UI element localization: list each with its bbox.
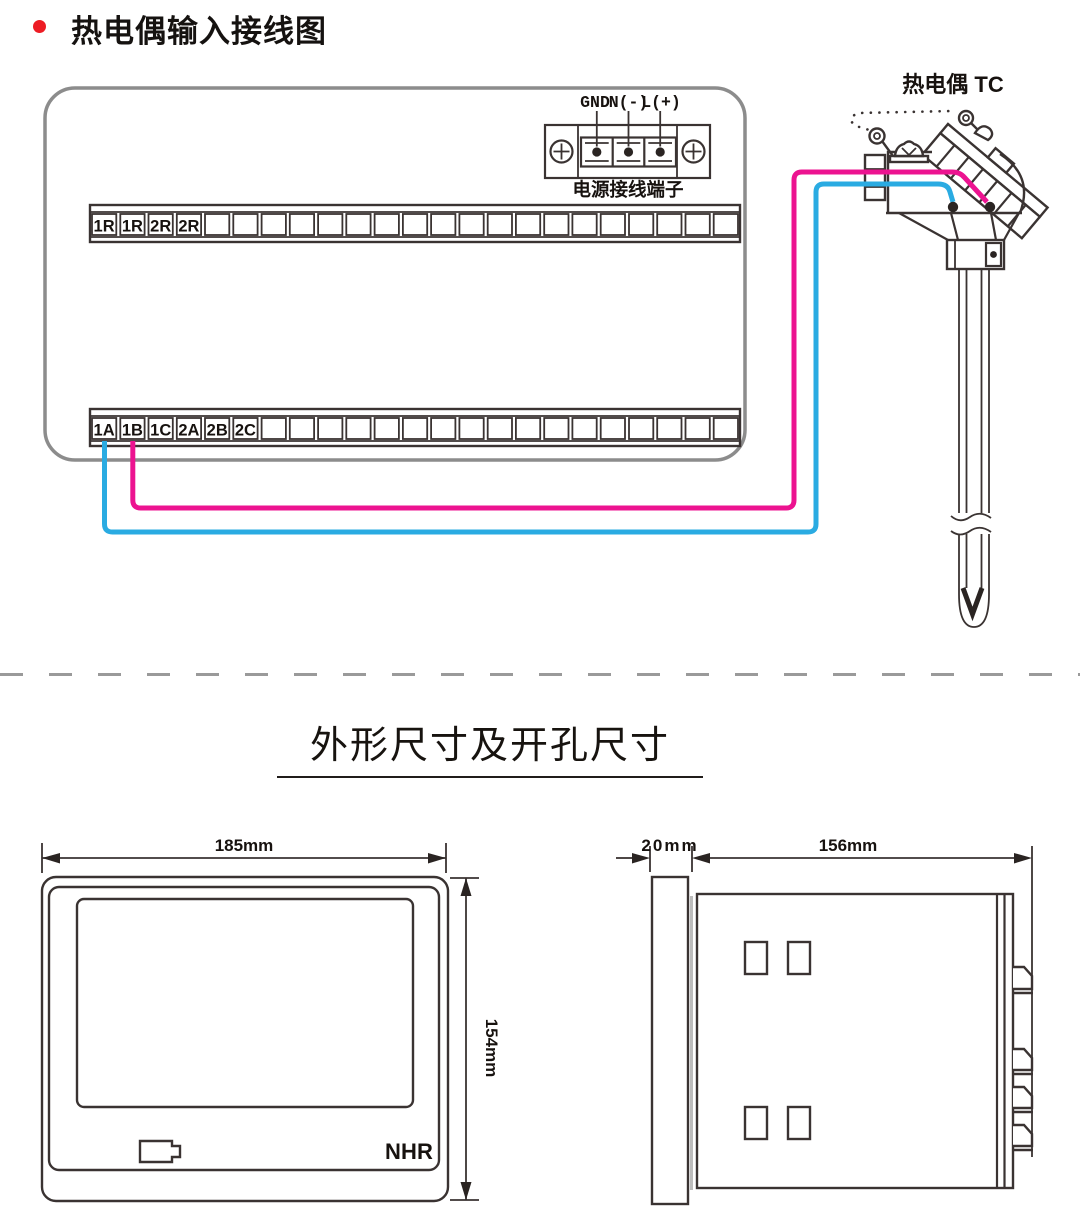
power-terminal-caption: 电源接线端子 (572, 179, 683, 200)
junction-v-mark (963, 588, 982, 614)
retaining-chain-dotted (851, 111, 952, 131)
terminal-cell-label: 1R (94, 218, 115, 236)
probe-clamp (947, 240, 1004, 269)
vent-slot (745, 1107, 767, 1139)
terminal-cell-label: 2C (235, 422, 256, 440)
wire-terminal-dot (985, 202, 995, 212)
terminal-cell-label: 1B (122, 422, 143, 440)
manual-page: 热电偶输入接线图 GND N(-) L(+) 电源接线端子 1R1R2R2R (0, 0, 1080, 1229)
side-length-label: 156mm (819, 836, 878, 855)
mounting-claws (1013, 967, 1033, 1150)
logo-letter-h: H (401, 1139, 417, 1164)
eyelet-screw-right (959, 111, 992, 140)
arrow-down-icon (461, 1182, 472, 1200)
terminal-cell-label: 2R (178, 218, 199, 236)
dashed-divider (0, 673, 1080, 676)
thermocouple-drawing: 热电偶 TC (851, 72, 1055, 627)
wire-terminal-dot (948, 202, 958, 212)
terminal-cell-label: 1A (94, 422, 115, 440)
vent-slot (788, 1107, 810, 1139)
arrow-left-icon (42, 853, 60, 864)
wing-screw (890, 142, 928, 163)
nhr-logo: N H R (385, 1139, 433, 1164)
side-bezel (652, 877, 688, 1204)
terminal-cell-label: 1R (122, 218, 143, 236)
arrow-up-icon (461, 878, 472, 896)
terminal-dot (656, 147, 665, 156)
arrow-right-icon (428, 853, 446, 864)
terminal-dot (592, 147, 601, 156)
front-screen (77, 899, 413, 1107)
terminal-cell-label: 1C (150, 422, 171, 440)
side-body (697, 894, 1013, 1188)
front-view: 185mm N H R 154mm (42, 836, 501, 1201)
dimensions-section-title: 外形尺寸及开孔尺寸 (277, 714, 703, 778)
side-view: 20mm 156mm (616, 836, 1033, 1204)
logo-letter-n: N (385, 1139, 401, 1164)
front-height-label: 154mm (482, 1019, 501, 1078)
terminal-cell-label: 2R (150, 218, 171, 236)
hex-nut (865, 155, 885, 200)
thermocouple-label: 热电偶 TC (902, 72, 1004, 97)
dimension-drawings: 185mm N H R 154mm (0, 809, 1080, 1229)
power-label-gnd: GND (580, 93, 610, 112)
terminal-cell-label: 2B (207, 422, 228, 440)
probe-tube (951, 269, 991, 627)
extension-ticks (450, 878, 479, 1200)
logo-letter-r: R (417, 1139, 433, 1164)
terminal-cell-label: 2A (178, 422, 199, 440)
arrow-right-icon (1014, 853, 1032, 864)
side-depth-label: 20mm (641, 836, 698, 855)
vent-slot (788, 942, 810, 974)
thermocouple-wiring-diagram: GND N(-) L(+) 电源接线端子 1R1R2R2R 1A1B1C2A2B… (0, 0, 1080, 672)
eyelet-screw-left (870, 129, 894, 157)
front-width-label: 185mm (215, 836, 274, 855)
terminal-dot (624, 147, 633, 156)
power-label-l: L(+) (641, 93, 681, 112)
vent-slot (745, 942, 767, 974)
